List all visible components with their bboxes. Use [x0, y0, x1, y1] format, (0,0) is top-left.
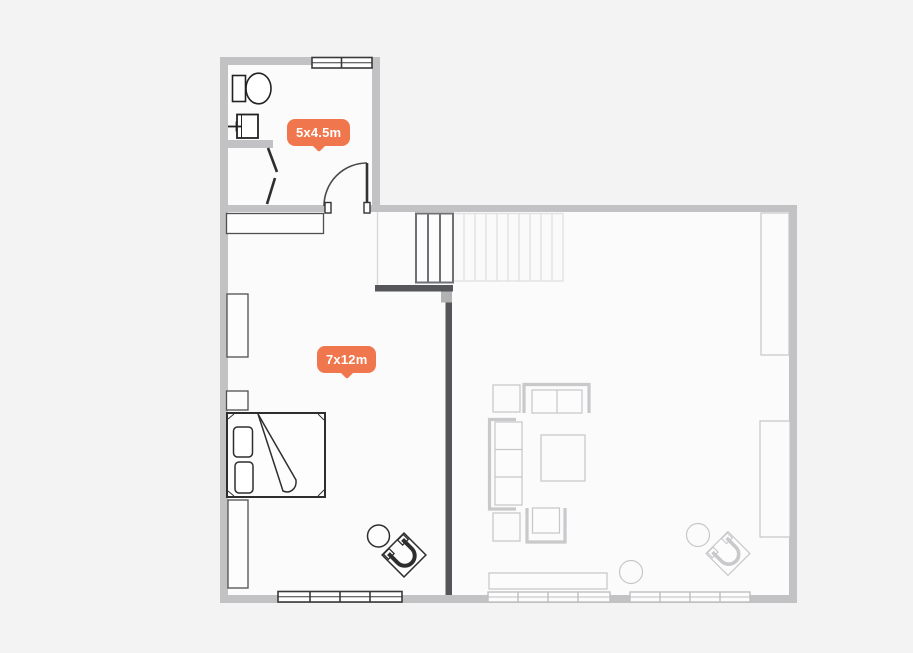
shelf-2-icon: [760, 421, 790, 537]
window-living-1-icon: [488, 592, 610, 602]
window-bedroom-icon: [278, 592, 402, 603]
floor-plan-drawing: [0, 0, 913, 653]
closet-icon: [227, 214, 324, 234]
bed-icon: [227, 413, 325, 497]
toilet-icon: [233, 73, 272, 104]
window-living-2-icon: [630, 592, 750, 602]
tall-wardrobe-icon: [228, 500, 248, 588]
bathroom-dimension-badge[interactable]: 5x4.5m: [287, 119, 350, 146]
side-table-icon: [368, 525, 390, 547]
floor-plan-canvas: 5x4.5m 7x12m: [0, 0, 913, 653]
sideboard-icon: [489, 573, 607, 589]
nightstand-icon: [227, 391, 249, 410]
window-top-icon: [312, 58, 372, 69]
column: [441, 292, 452, 303]
wardrobe-icon: [227, 294, 248, 357]
bedroom-dimension-badge[interactable]: 7x12m: [317, 346, 376, 373]
shelf-icon: [761, 213, 789, 355]
